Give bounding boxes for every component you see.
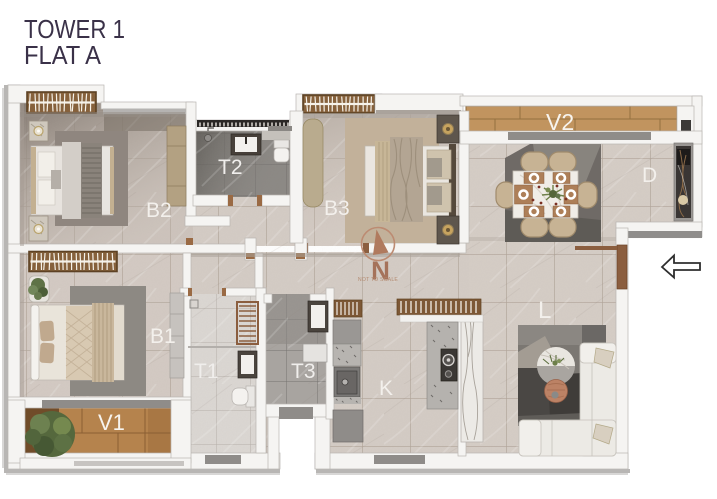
svg-text:K: K [379, 377, 393, 400]
svg-text:B1: B1 [150, 325, 176, 348]
svg-text:V1: V1 [98, 410, 125, 435]
svg-text:B2: B2 [146, 199, 172, 222]
svg-text:T3: T3 [291, 360, 316, 383]
svg-text:T1: T1 [194, 360, 219, 383]
svg-text:FLAT A: FLAT A [24, 40, 102, 70]
svg-text:V2: V2 [546, 109, 574, 135]
svg-text:D: D [642, 164, 657, 187]
svg-text:NOT TO SCALE: NOT TO SCALE [358, 277, 399, 283]
svg-text:L: L [538, 297, 551, 324]
svg-text:T2: T2 [218, 156, 243, 179]
svg-text:B3: B3 [324, 197, 350, 220]
